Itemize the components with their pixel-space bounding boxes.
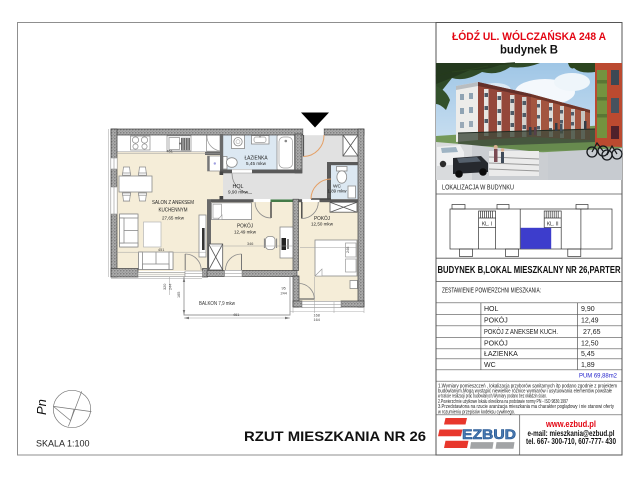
svg-text:POKÓJ: POKÓJ xyxy=(484,339,508,348)
svg-text:KL. I: KL. I xyxy=(482,222,492,228)
svg-text:320: 320 xyxy=(163,284,167,290)
svg-text:KUCHENNYM: KUCHENNYM xyxy=(159,208,188,214)
svg-text:w rozumieniu przepisów kodeksu: w rozumieniu przepisów kodeksu cywilnego… xyxy=(438,409,515,415)
svg-text:346: 346 xyxy=(247,242,253,246)
svg-text:12,50: 12,50 xyxy=(581,341,599,348)
svg-text:ZESTAWIENIE POWIERZCHNI MIESZK: ZESTAWIENIE POWIERZCHNI MIESZKANIA: xyxy=(442,286,541,295)
svg-text:12,49: 12,49 xyxy=(581,318,599,325)
svg-text:LOKALIZACJA W BUDYNKU: LOKALIZACJA W BUDYNKU xyxy=(442,185,514,192)
svg-text:27,65 mkw: 27,65 mkw xyxy=(162,216,185,222)
svg-text:RZUT MIESZKANIA NR 26: RZUT MIESZKANIA NR 26 xyxy=(244,428,426,444)
svg-text:POKÓJ: POKÓJ xyxy=(484,316,508,325)
svg-text:POKÓJ Z ANEKSEM KUCH.: POKÓJ Z ANEKSEM KUCH. xyxy=(484,327,558,336)
svg-text:KL. II: KL. II xyxy=(547,222,559,228)
svg-text:5,45 mkw: 5,45 mkw xyxy=(246,161,267,166)
svg-text:451: 451 xyxy=(158,248,164,252)
svg-text:461: 461 xyxy=(233,313,239,317)
svg-text:budynek B: budynek B xyxy=(500,43,558,57)
svg-text:Pn: Pn xyxy=(34,399,49,415)
svg-text:WC: WC xyxy=(484,362,496,369)
svg-text:SALON Z ANEKSEM: SALON Z ANEKSEM xyxy=(152,200,194,206)
svg-text:BALKON 7,9 mkw: BALKON 7,9 mkw xyxy=(199,301,235,307)
svg-text:244: 244 xyxy=(169,284,173,290)
svg-text:164: 164 xyxy=(314,318,320,322)
svg-text:ŁÓDŹ UL. WÓLCZAŃSKA 248 A: ŁÓDŹ UL. WÓLCZAŃSKA 248 A xyxy=(452,30,606,43)
svg-text:SKALA 1:100: SKALA 1:100 xyxy=(36,438,90,448)
svg-text:1,89 mkw: 1,89 mkw xyxy=(328,189,348,194)
svg-text:PUM 69,88m2: PUM 69,88m2 xyxy=(579,373,617,380)
svg-text:POKÓJ: POKÓJ xyxy=(237,223,253,230)
svg-text:5,45: 5,45 xyxy=(581,351,595,358)
svg-text:12,50 mkw: 12,50 mkw xyxy=(311,222,334,227)
svg-text:451: 451 xyxy=(167,150,173,154)
svg-text:www.ezbud.pl: www.ezbud.pl xyxy=(545,419,596,429)
svg-text:1,89: 1,89 xyxy=(581,362,595,369)
svg-text:9,90: 9,90 xyxy=(581,306,595,313)
svg-text:tel. 667- 300-710, 607-777- 43: tel. 667- 300-710, 607-777- 430 xyxy=(526,437,616,446)
svg-text:246: 246 xyxy=(346,247,350,253)
svg-text:95: 95 xyxy=(282,287,286,291)
svg-text:9,90 mkw: 9,90 mkw xyxy=(228,190,249,195)
svg-text:EZBUD: EZBUD xyxy=(462,427,516,442)
svg-text:12,49 mkw: 12,49 mkw xyxy=(234,230,257,235)
svg-text:27,65: 27,65 xyxy=(583,329,601,336)
svg-text:HOL: HOL xyxy=(484,306,499,313)
svg-text:ŁAZIENKA: ŁAZIENKA xyxy=(484,351,518,358)
svg-text:244: 244 xyxy=(281,292,287,296)
svg-text:165: 165 xyxy=(177,292,181,298)
svg-text:BUDYNEK B,LOKAL MIESZKALNY NR: BUDYNEK B,LOKAL MIESZKALNY NR 26,PARTER xyxy=(438,265,622,276)
